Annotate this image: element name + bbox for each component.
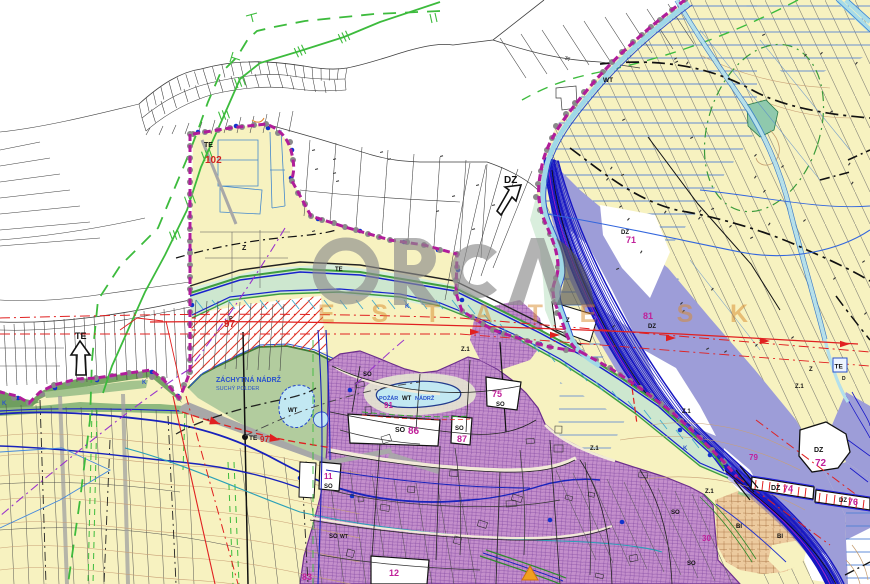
svg-text:3y: 3y: [565, 56, 571, 62]
svg-text:P: P: [229, 316, 233, 322]
svg-text:ZÁCHYTNÁ NÁDRŽ: ZÁCHYTNÁ NÁDRŽ: [216, 375, 282, 384]
svg-text:74: 74: [783, 484, 793, 494]
svg-text:NÁDRŽ: NÁDRŽ: [415, 394, 435, 402]
svg-text:WT: WT: [340, 534, 348, 540]
svg-text:TE: TE: [835, 364, 844, 371]
svg-text:Z: Z: [242, 245, 247, 252]
svg-text:SO: SO: [395, 427, 406, 434]
svg-text:12: 12: [389, 568, 399, 578]
svg-text:BI: BI: [777, 534, 783, 540]
svg-text:DZ: DZ: [648, 324, 656, 330]
svg-text:DZ: DZ: [839, 498, 847, 504]
svg-text:DZ: DZ: [814, 447, 824, 454]
svg-text:TE: TE: [249, 435, 258, 442]
svg-text:86: 86: [408, 426, 420, 437]
svg-text:71: 71: [626, 235, 636, 245]
svg-text:WT: WT: [402, 396, 412, 402]
svg-text:TE: TE: [335, 267, 343, 273]
svg-text:87: 87: [457, 434, 467, 444]
svg-text:BI: BI: [736, 524, 742, 530]
svg-text:Z.1: Z.1: [461, 347, 470, 353]
svg-text:TE: TE: [204, 142, 213, 149]
svg-text:97: 97: [260, 435, 269, 444]
svg-text:SO: SO: [671, 510, 680, 516]
svg-text:K: K: [142, 380, 147, 386]
svg-text:SO: SO: [687, 561, 696, 567]
svg-text:79: 79: [749, 453, 758, 462]
svg-text:Z.1: Z.1: [795, 384, 804, 390]
svg-text:SO: SO: [329, 534, 338, 540]
svg-text:SO: SO: [363, 372, 372, 378]
svg-text:ESTATE SK: ESTATE SK: [318, 300, 748, 328]
svg-text:DZ: DZ: [771, 485, 781, 492]
svg-text:102: 102: [205, 155, 222, 166]
svg-text:WT: WT: [288, 408, 298, 414]
svg-text:SO: SO: [324, 484, 333, 490]
svg-text:WT: WT: [603, 77, 613, 84]
svg-text:K: K: [683, 446, 688, 452]
svg-text:30: 30: [702, 534, 711, 543]
svg-text:SO: SO: [496, 402, 505, 408]
svg-text:SO: SO: [455, 426, 464, 432]
svg-text:DZ: DZ: [504, 175, 517, 186]
svg-text:SUCHÝ POLDER: SUCHÝ POLDER: [216, 385, 259, 392]
svg-text:TE: TE: [75, 331, 87, 341]
svg-text:Z.1: Z.1: [705, 489, 714, 495]
svg-text:Z.1: Z.1: [682, 409, 691, 415]
svg-text:83: 83: [302, 572, 312, 582]
svg-text:75: 75: [492, 389, 502, 399]
svg-text:Z.1: Z.1: [590, 446, 599, 452]
svg-text:81: 81: [643, 311, 653, 321]
svg-text:K: K: [2, 401, 7, 407]
svg-text:11: 11: [324, 472, 333, 481]
svg-text:Z: Z: [566, 318, 570, 324]
svg-text:Z: Z: [809, 367, 813, 373]
svg-text:91: 91: [384, 401, 393, 410]
svg-text:D: D: [842, 376, 846, 382]
svg-text:72: 72: [815, 458, 827, 469]
svg-text:76: 76: [848, 497, 858, 507]
